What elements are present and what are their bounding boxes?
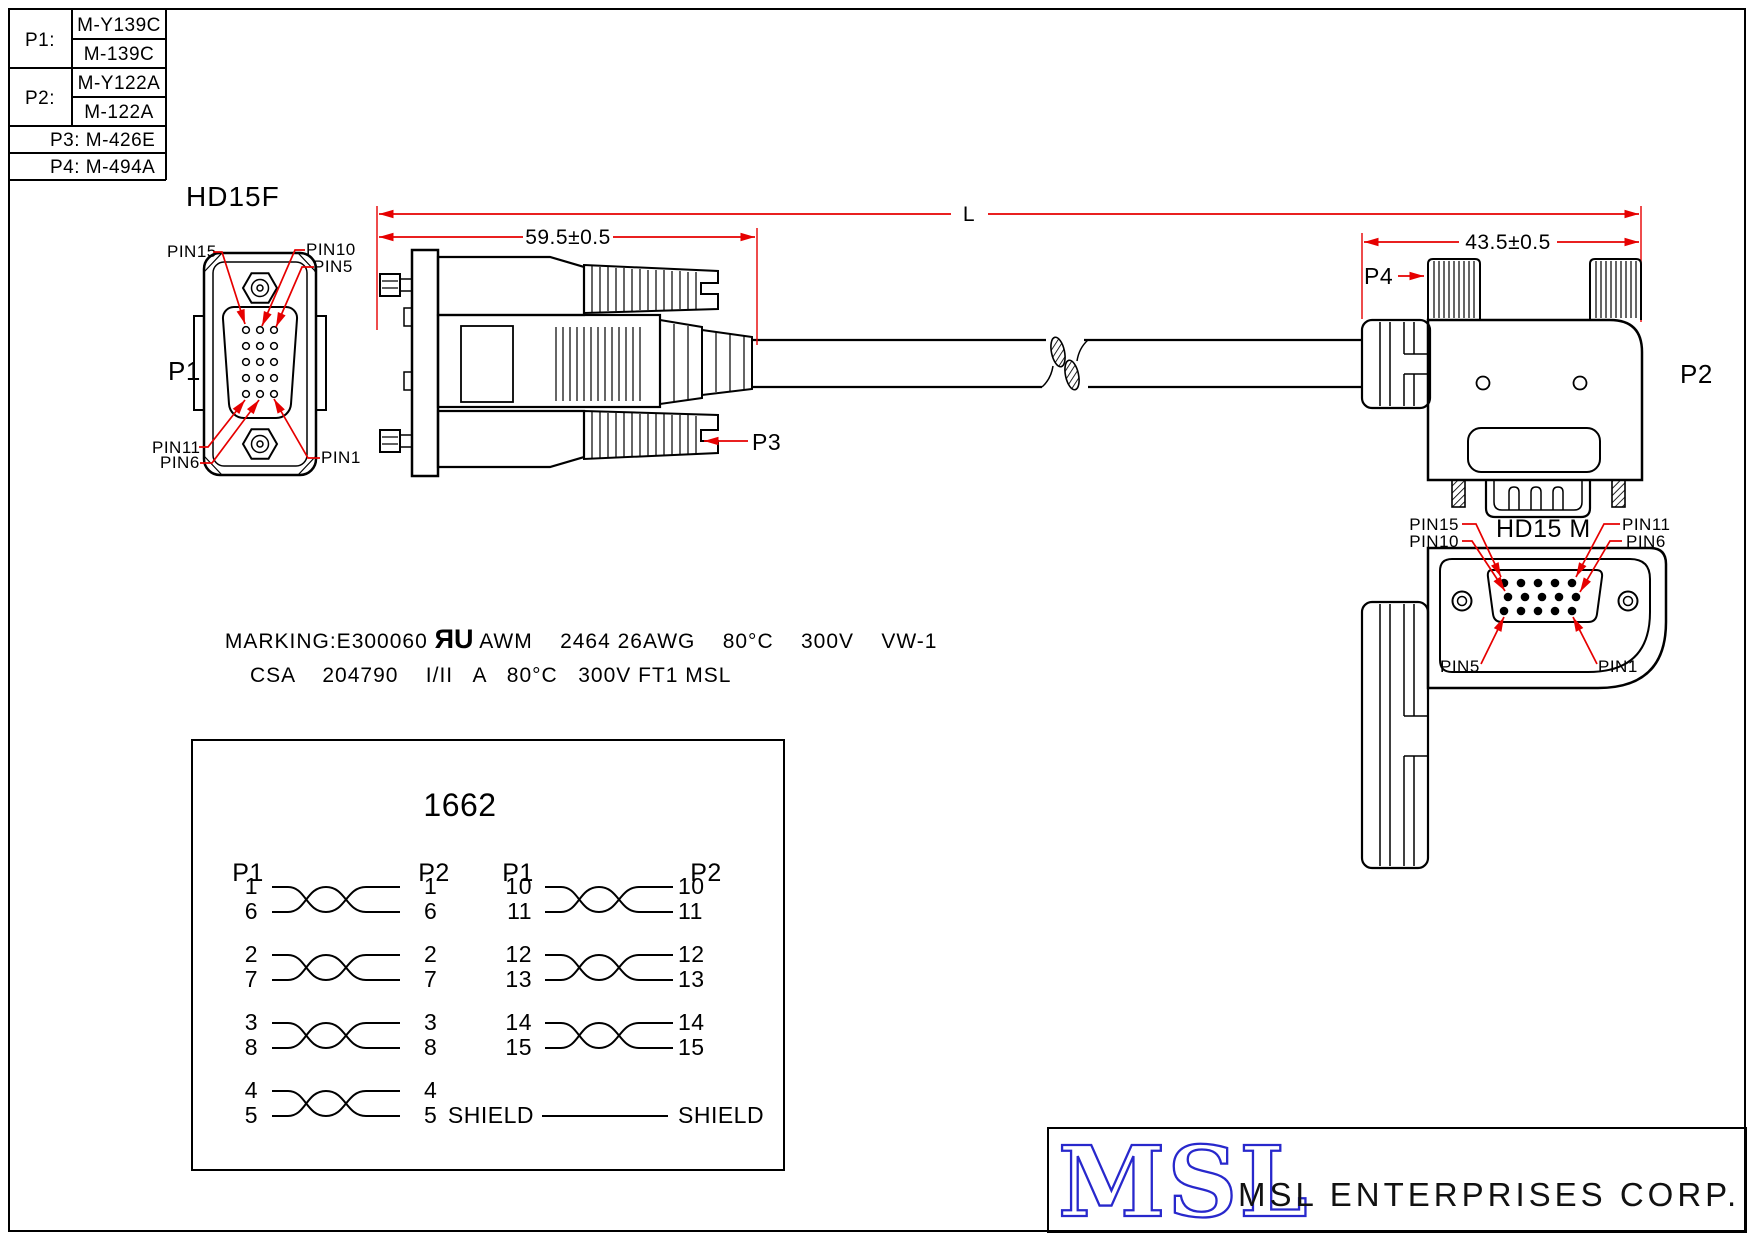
svg-text:5: 5 <box>424 1102 437 1128</box>
wire-pair-10-11: 10 11 10 11 <box>505 873 704 924</box>
dsub-flange <box>412 250 438 476</box>
svg-text:15: 15 <box>505 1034 532 1060</box>
pin10-label: PIN10 <box>1409 532 1459 551</box>
svg-text:15: 15 <box>678 1034 705 1060</box>
svg-text:14: 14 <box>678 1009 705 1035</box>
hd15m-title: HD15 M <box>1496 515 1591 543</box>
wire-pair-14-15: 14 15 14 15 <box>505 1009 704 1060</box>
svg-text:8: 8 <box>424 1034 437 1060</box>
wiring-part-number: 1662 <box>423 787 496 823</box>
designator-p2: P2 <box>1680 359 1713 389</box>
marking-line1: MARKING:E300060 ЯU AWM 2464 26AWG 80°C 3… <box>177 624 972 654</box>
svg-text:P3: P3 <box>752 429 781 455</box>
svg-text:7: 7 <box>424 966 437 992</box>
title-block: MSL MSL ENTERPRISES CORP. <box>1048 1125 1746 1239</box>
parts-table: P1: M-Y139C M-139C P2: M-Y122A M-122A P3… <box>9 10 166 180</box>
marking-block: MARKING:E300060 ЯU AWM 2464 26AWG 80°C 3… <box>177 624 972 687</box>
svg-text:13: 13 <box>505 966 532 992</box>
p2-shell-top <box>1468 428 1600 472</box>
svg-text:SHIELD: SHIELD <box>448 1102 534 1128</box>
designator-p1: P1 <box>168 356 201 386</box>
shield-connection: SHIELD SHIELD <box>448 1102 764 1128</box>
table-value: M-139C <box>84 44 155 65</box>
hd15f-title: HD15F <box>186 181 280 212</box>
table-row-p3: P3: M-426E <box>50 130 155 151</box>
table-label-p2: P2: <box>25 88 55 109</box>
dim-overall-length: L <box>963 203 975 226</box>
svg-text:13: 13 <box>678 966 705 992</box>
cable <box>752 336 1362 391</box>
marking-line2: CSA 204790 I/II A 80°C 300V FT1 MSL <box>250 664 731 687</box>
svg-text:1: 1 <box>245 873 258 899</box>
hood-body <box>438 315 660 407</box>
dim-p2-length: 43.5±0.5 <box>1465 231 1551 254</box>
svg-text:P4: P4 <box>1364 263 1393 289</box>
svg-text:6: 6 <box>245 898 258 924</box>
pin-leader-lines <box>199 250 320 463</box>
wiring-diagram: 1662 P1 P2 P1 P2 1 6 1 6 2 7 2 7 3 8 3 8… <box>192 740 784 1170</box>
svg-text:5: 5 <box>245 1102 258 1128</box>
dimension-lines: L 59.5±0.5 43.5±0.5 <box>377 203 1641 345</box>
svg-text:3: 3 <box>245 1009 258 1035</box>
hex-nut-top <box>243 273 277 302</box>
hd15f-front-view: HD15F P1 PIN15 PIN10 PIN5 <box>152 181 361 475</box>
pin5-label: PIN5 <box>1440 657 1480 676</box>
hex-nut-bottom <box>243 429 277 458</box>
svg-text:SHIELD: SHIELD <box>678 1102 764 1128</box>
svg-text:7: 7 <box>245 966 258 992</box>
svg-text:4: 4 <box>424 1077 437 1103</box>
svg-text:10: 10 <box>505 873 532 899</box>
table-value: M-Y122A <box>78 73 161 94</box>
table-value: M-122A <box>84 102 154 123</box>
pin6-label: PIN6 <box>160 453 200 472</box>
p2-thumbscrew-right <box>1590 259 1641 320</box>
svg-text:4: 4 <box>245 1077 258 1103</box>
dim-p1-length: 59.5±0.5 <box>525 226 611 249</box>
pin6-label: PIN6 <box>1626 532 1666 551</box>
p2-male-dsub <box>1452 480 1625 517</box>
pin15-label: PIN15 <box>167 242 217 261</box>
svg-text:8: 8 <box>245 1034 258 1060</box>
pin1-label: PIN1 <box>1598 657 1638 676</box>
socket-pins <box>243 327 278 398</box>
company-name: MSL ENTERPRISES CORP. <box>1238 1176 1740 1213</box>
wire-pair-4-5: 4 5 4 5 <box>245 1077 438 1128</box>
pin1-label: PIN1 <box>321 448 361 467</box>
svg-text:2: 2 <box>245 941 258 967</box>
svg-text:11: 11 <box>678 898 703 924</box>
cable-break-symbol <box>1042 336 1088 391</box>
svg-text:10: 10 <box>678 873 705 899</box>
p2-body <box>1428 320 1642 480</box>
wire-pair-2-7: 2 7 2 7 <box>245 941 438 992</box>
pin5-label: PIN5 <box>313 257 353 276</box>
svg-text:3: 3 <box>424 1009 437 1035</box>
p2-strain-relief <box>1362 320 1430 408</box>
hd15m-face-view: HD15 M PIN15 PIN10 PIN11 PIN6 PIN5 PIN1 <box>1362 515 1671 868</box>
mount-tab-right <box>316 316 326 410</box>
svg-text:12: 12 <box>678 941 705 967</box>
p2-side-view <box>1362 259 1642 517</box>
boot-rib-bottom <box>584 411 718 459</box>
svg-text:12: 12 <box>505 941 532 967</box>
wire-pair-12-13: 12 13 12 13 <box>505 941 704 992</box>
svg-text:2: 2 <box>424 941 437 967</box>
engineering-drawing: P1: M-Y139C M-139C P2: M-Y122A M-122A P3… <box>0 0 1754 1240</box>
hd15m-strain-relief <box>1362 602 1428 868</box>
table-value: M-Y139C <box>77 15 161 36</box>
svg-text:14: 14 <box>505 1009 532 1035</box>
svg-text:1: 1 <box>424 873 437 899</box>
p1-side-view <box>380 250 752 476</box>
p2-thumbscrew-left <box>1428 259 1480 320</box>
boot-rib-top <box>584 265 718 313</box>
svg-text:6: 6 <box>424 898 437 924</box>
table-label-p1: P1: <box>25 30 55 51</box>
hd15m-pins <box>1500 579 1581 616</box>
table-row-p4: P4: M-494A <box>50 157 155 178</box>
svg-text:11: 11 <box>507 898 532 924</box>
wire-pair-3-8: 3 8 3 8 <box>245 1009 438 1060</box>
callout-p4: P4 <box>1364 263 1424 289</box>
wire-pair-1-6: 1 6 1 6 <box>245 873 438 924</box>
